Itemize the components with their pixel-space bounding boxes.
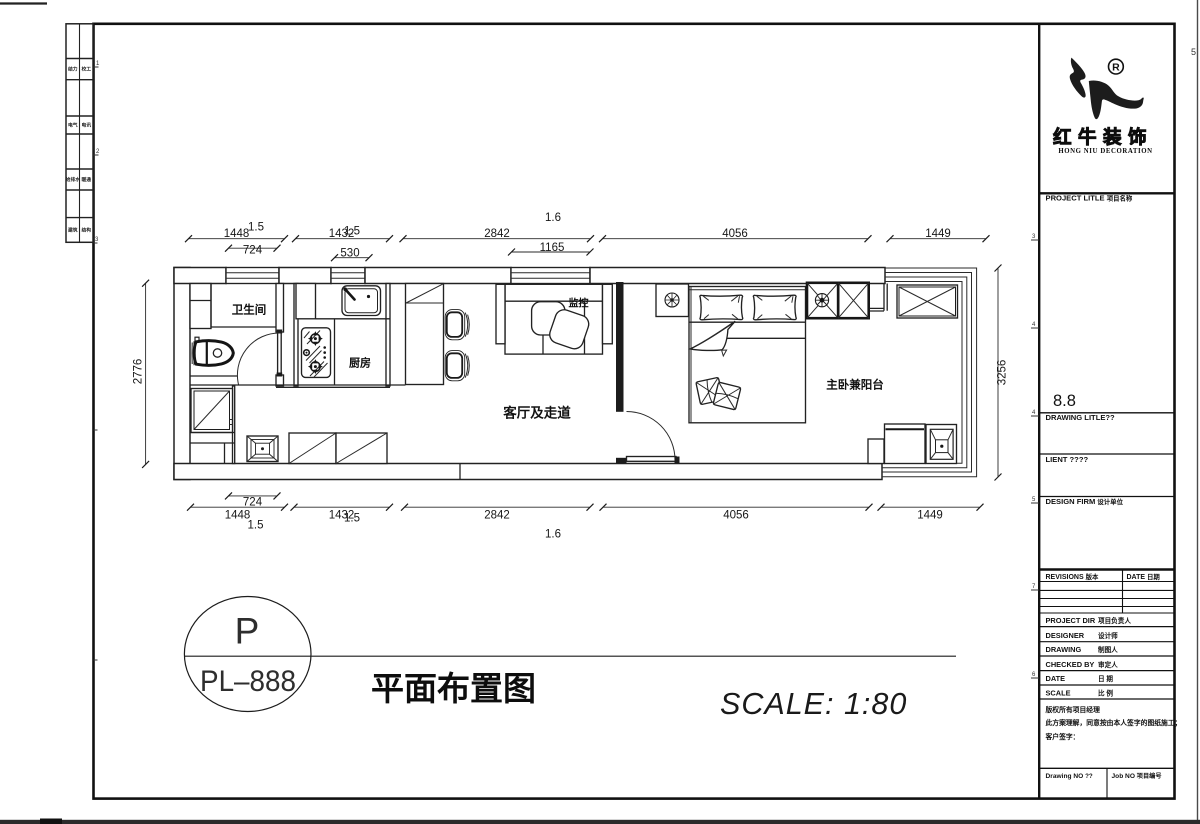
- svg-text:DESIGNER: DESIGNER: [1046, 631, 1085, 640]
- svg-text:主卧兼阳台: 主卧兼阳台: [826, 378, 884, 392]
- svg-text:1.5: 1.5: [248, 520, 264, 532]
- svg-text:平面布置图: 平面布置图: [371, 670, 536, 707]
- svg-text:日 期: 日 期: [1098, 674, 1113, 683]
- svg-text:2842: 2842: [484, 228, 510, 240]
- svg-text:2776: 2776: [133, 359, 145, 385]
- svg-text:版权所有项目经理: 版权所有项目经理: [1045, 705, 1101, 714]
- svg-text:DATE: DATE: [1046, 674, 1066, 683]
- svg-text:1.5: 1.5: [344, 226, 360, 238]
- svg-text:PL–888: PL–888: [200, 665, 296, 698]
- svg-text:HONG NIU DECORATION: HONG NIU DECORATION: [1058, 148, 1152, 155]
- svg-text:监控: 监控: [569, 297, 589, 310]
- svg-text:PROJECT DIR: PROJECT DIR: [1046, 616, 1096, 625]
- svg-text:客户签字：: 客户签字：: [1045, 732, 1080, 741]
- svg-text:4056: 4056: [723, 510, 749, 522]
- svg-text:暖通: 暖通: [81, 176, 91, 183]
- svg-text:1.6: 1.6: [545, 212, 561, 224]
- svg-text:2842: 2842: [484, 510, 510, 522]
- svg-text:1.5: 1.5: [344, 513, 360, 525]
- svg-text:DESIGN FIRM 设计单位: DESIGN FIRM 设计单位: [1046, 497, 1124, 506]
- svg-text:3256: 3256: [997, 360, 1009, 386]
- svg-text:1448: 1448: [224, 228, 250, 240]
- svg-text:1449: 1449: [925, 228, 951, 240]
- svg-text:此方案理解，同意按由本人签字的图纸施工；: 此方案理解，同意按由本人签字的图纸施工；: [1046, 718, 1182, 727]
- svg-text:P: P: [235, 611, 260, 652]
- svg-text:5: 5: [1191, 47, 1196, 57]
- svg-text:724: 724: [243, 245, 263, 257]
- svg-text:4056: 4056: [722, 228, 748, 240]
- svg-text:DATE 日期: DATE 日期: [1127, 572, 1161, 581]
- svg-text:结力: 结力: [68, 66, 78, 73]
- svg-text:客厅及走道: 客厅及走道: [502, 405, 571, 421]
- svg-text:设计师: 设计师: [1098, 631, 1118, 640]
- svg-text:1165: 1165: [540, 242, 565, 254]
- svg-text:SCALE: SCALE: [1046, 688, 1071, 697]
- svg-text:Job NO 项目编号: Job NO 项目编号: [1112, 772, 1162, 780]
- svg-text:1.5: 1.5: [248, 222, 264, 234]
- svg-text:Drawing NO ??: Drawing NO ??: [1046, 773, 1093, 780]
- svg-text:审定人: 审定人: [1098, 660, 1118, 669]
- svg-text:电气: 电气: [68, 122, 78, 129]
- svg-text:比 例: 比 例: [1098, 688, 1113, 697]
- svg-text:DRAWING: DRAWING: [1046, 645, 1082, 654]
- svg-text:项目负责人: 项目负责人: [1098, 616, 1131, 625]
- svg-text:R: R: [1112, 62, 1120, 74]
- svg-text:卫生间: 卫生间: [232, 303, 267, 317]
- svg-text:厨房: 厨房: [349, 356, 371, 370]
- svg-text:REVISIONS 版本: REVISIONS 版本: [1046, 572, 1099, 581]
- svg-text:电讯: 电讯: [81, 122, 91, 129]
- svg-text:530: 530: [340, 248, 359, 260]
- svg-text:8.8: 8.8: [1053, 392, 1076, 410]
- svg-text:CHECKED BY: CHECKED BY: [1046, 660, 1095, 669]
- svg-text:制图人: 制图人: [1098, 645, 1118, 654]
- svg-text:结构: 结构: [81, 227, 91, 234]
- svg-text:校工: 校工: [81, 66, 91, 73]
- svg-text:LIENT ????: LIENT ????: [1046, 455, 1089, 464]
- svg-text:红牛装饰: 红牛装饰: [1053, 127, 1153, 148]
- svg-text:给排水: 给排水: [66, 176, 81, 183]
- svg-text:1448: 1448: [225, 510, 251, 522]
- svg-text:724: 724: [243, 497, 263, 509]
- svg-text:1.6: 1.6: [545, 529, 561, 541]
- svg-text:建筑: 建筑: [67, 227, 78, 234]
- svg-text:DRAWING LITLE??: DRAWING LITLE??: [1046, 413, 1116, 422]
- svg-text:1449: 1449: [917, 510, 943, 522]
- svg-text:PROJECT LITLE 项目名称: PROJECT LITLE 项目名称: [1046, 194, 1133, 203]
- svg-text:SCALE: 1:80: SCALE: 1:80: [720, 687, 907, 721]
